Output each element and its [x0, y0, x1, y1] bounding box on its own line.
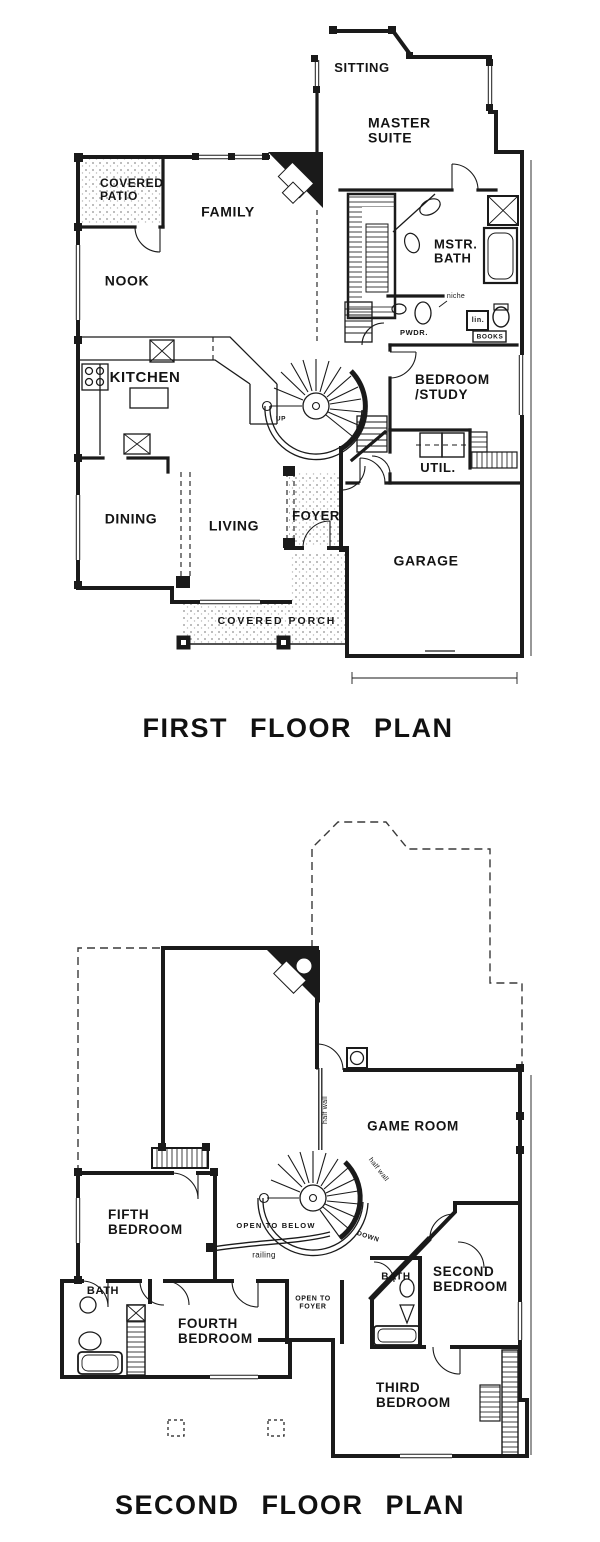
spiral-stair-down — [206, 1151, 368, 1256]
room-label-dining: DINING — [105, 511, 158, 526]
attic-access-box — [347, 1048, 367, 1068]
label-books: BOOKS — [477, 333, 504, 340]
second-floor-plan-title: SECOND FLOOR PLAN — [115, 1490, 465, 1521]
first-floor-drawing — [74, 26, 531, 684]
room-label-covered-patio: COVERED PATIO — [100, 177, 164, 203]
room-label-game-room: GAME ROOM — [367, 1120, 459, 1135]
room-label-bath-right: BATH — [381, 1272, 410, 1283]
fireplace-2f — [267, 950, 320, 1003]
stipple-areas — [80, 159, 345, 644]
room-label-util: UTIL. — [420, 461, 456, 475]
kitchen-fixtures — [80, 337, 277, 455]
room-label-kitchen: KITCHEN — [110, 370, 181, 387]
room-label-bath-left: BATH — [87, 1285, 119, 1297]
label-half-wall-vertical: half wall — [322, 1096, 330, 1124]
label-open-to-below: OPEN TO BELOW — [236, 1222, 315, 1230]
room-label-mstr-bath: MSTR. BATH — [434, 238, 477, 267]
room-label-sitting: SITTING — [334, 61, 389, 75]
room-label-second-bedroom: SECOND BEDROOM — [433, 1265, 508, 1295]
room-label-fifth-bedroom: FIFTH BEDROOM — [108, 1208, 183, 1238]
room-label-garage: GARAGE — [393, 553, 458, 568]
room-label-living: LIVING — [209, 518, 259, 533]
exterior-walls-2f — [62, 948, 527, 1456]
room-label-pwdr: PWDR. — [400, 329, 428, 337]
room-label-fourth-bedroom: FOURTH BEDROOM — [178, 1317, 253, 1347]
room-label-nook: NOOK — [105, 273, 149, 288]
bathroom-fixtures — [392, 194, 518, 342]
label-covered-porch: COVERED PORCH — [218, 616, 337, 628]
room-label-bedroom-study: BEDROOM /STUDY — [415, 373, 490, 403]
room-label-lin: lin. — [472, 317, 485, 325]
floor-plan-drawing — [0, 0, 600, 1542]
first-floor-plan-title: FIRST FLOOR PLAN — [143, 713, 454, 744]
master-closet — [348, 194, 395, 318]
label-railing: railing — [252, 1252, 275, 1261]
room-label-family: FAMILY — [201, 204, 255, 219]
label-up: UP — [276, 415, 286, 422]
fireplace — [268, 152, 323, 208]
second-floor-drawing — [62, 822, 531, 1459]
label-open-to-foyer: OPEN TO FOYER — [295, 1295, 331, 1310]
spiral-stair-up — [263, 302, 388, 460]
label-niche: niche — [447, 293, 465, 301]
floor-plan-sheet: SITTING MASTER SUITE COVERED PATIO FAMIL… — [0, 0, 600, 1542]
room-label-foyer: FOYER — [292, 509, 340, 523]
room-label-master-suite: MASTER SUITE — [368, 116, 431, 147]
room-label-third-bedroom: THIRD BEDROOM — [376, 1381, 451, 1411]
